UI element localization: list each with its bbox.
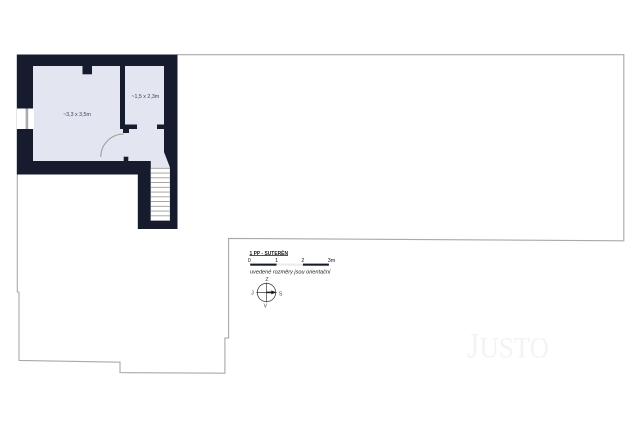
svg-text:Z: Z xyxy=(265,277,268,283)
svg-text:J: J xyxy=(251,291,254,297)
svg-text:JUSTO: JUSTO xyxy=(467,326,549,366)
svg-text:2: 2 xyxy=(301,258,304,264)
svg-text:~3,3 x 3,5m: ~3,3 x 3,5m xyxy=(63,112,91,118)
svg-text:~1,5 x 2,3m: ~1,5 x 2,3m xyxy=(131,94,159,100)
svg-text:V: V xyxy=(264,304,268,310)
svg-text:uvedené rozměry jsou orientačn: uvedené rozměry jsou orientační xyxy=(250,269,331,275)
svg-text:1: 1 xyxy=(275,258,278,264)
svg-text:3m: 3m xyxy=(328,258,336,264)
svg-text:S: S xyxy=(279,291,283,297)
svg-text:0: 0 xyxy=(248,258,251,264)
